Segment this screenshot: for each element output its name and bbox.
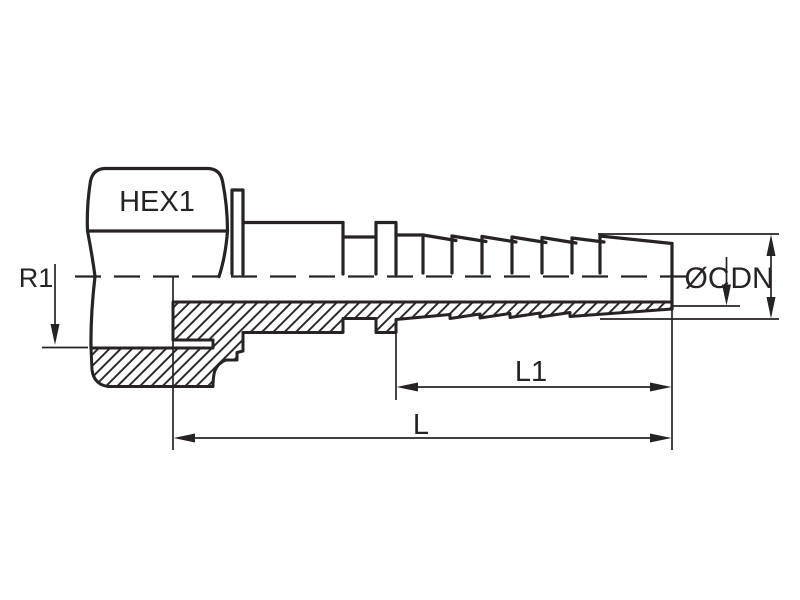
oc-label: ØC (685, 262, 730, 295)
l-arrowhead-right (650, 434, 672, 443)
hex-nut-left-edge (87, 169, 104, 349)
hex-size-label: HEX1 (119, 186, 195, 218)
l1-arrowhead-left (397, 383, 419, 392)
section-hatch (91, 302, 672, 387)
r1-label: R1 (19, 263, 54, 293)
dn-arrowhead-down (767, 297, 776, 319)
l1-arrowhead-right (650, 383, 672, 392)
technical-drawing-canvas: HEX1 R1 ØC DN L1 L (0, 0, 800, 600)
fitting-diagram: HEX1 R1 ØC DN L1 L (0, 0, 800, 600)
spigot-profile (232, 190, 672, 309)
l-arrowhead-left (174, 434, 196, 443)
dn-arrowhead-up (767, 235, 776, 257)
r1-arrowhead-down (51, 324, 60, 345)
hex-nut-top-right-edge (104, 169, 228, 277)
neck-edges (343, 223, 376, 275)
l1-label: L1 (515, 356, 547, 388)
l-label: L (413, 409, 429, 441)
collar-edges (232, 190, 243, 274)
ring-edges (376, 223, 423, 275)
dn-label: DN (730, 262, 773, 295)
section-body (91, 302, 672, 387)
tip-taper-edge (600, 236, 672, 244)
